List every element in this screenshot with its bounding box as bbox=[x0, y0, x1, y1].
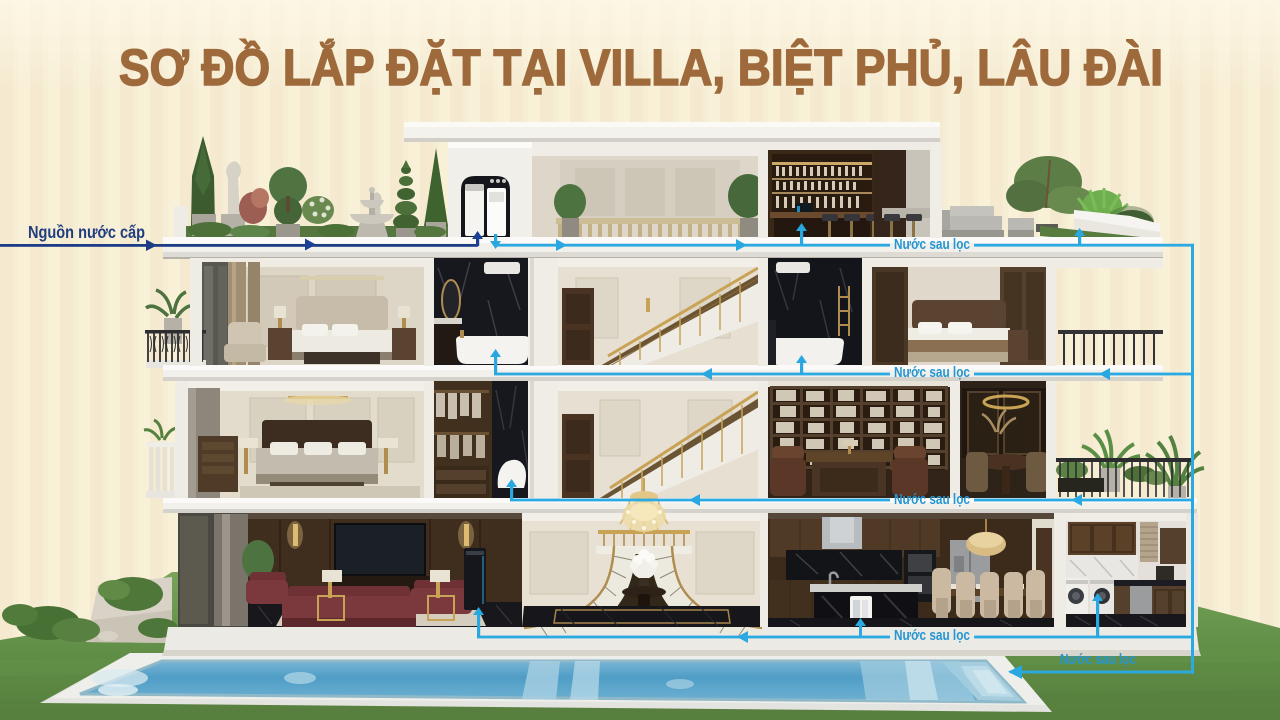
svg-text:Nước sau lọc: Nước sau lọc bbox=[894, 237, 970, 253]
svg-text:Nước sau lọc: Nước sau lọc bbox=[894, 628, 970, 644]
svg-text:Nước sau lọc: Nước sau lọc bbox=[894, 492, 970, 508]
svg-text:Nước sau lọc: Nước sau lọc bbox=[1060, 652, 1136, 668]
svg-text:SƠ ĐỒ LẮP ĐẶT TẠI VILLA, BIỆT: SƠ ĐỒ LẮP ĐẶT TẠI VILLA, BIỆT PHỦ, LÂU Đ… bbox=[119, 38, 1163, 96]
svg-text:Nước sau lọc: Nước sau lọc bbox=[894, 365, 970, 381]
svg-text:Nguồn nước cấp: Nguồn nước cấp bbox=[28, 222, 145, 242]
